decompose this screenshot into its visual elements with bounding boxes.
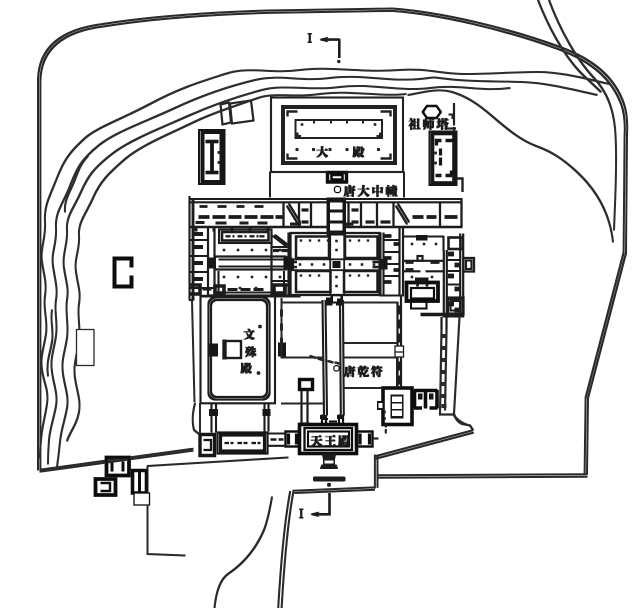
svg-text:I: I	[308, 31, 313, 46]
svg-text:I: I	[299, 506, 304, 521]
